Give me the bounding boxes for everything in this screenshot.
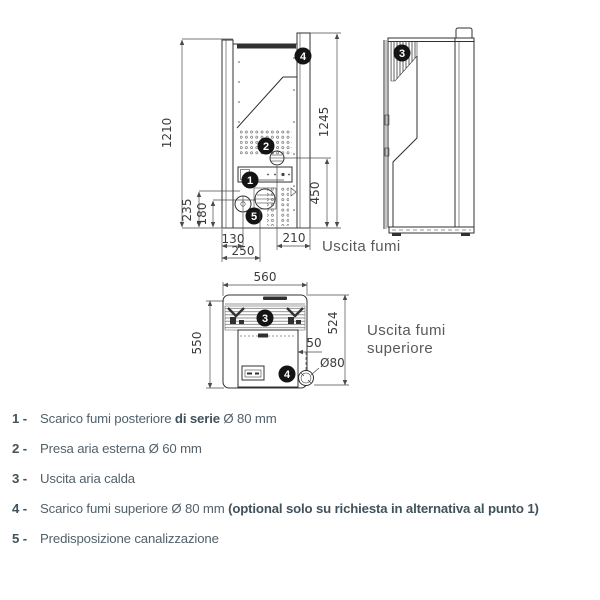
legend-item: 5 -Predisposizione canalizzazione <box>12 529 594 548</box>
rear-top-band <box>237 44 296 49</box>
legend: 1 -Scarico fumi posteriore di serie Ø 80… <box>12 409 594 559</box>
legend-item: 1 -Scarico fumi posteriore di serie Ø 80… <box>12 409 594 428</box>
legend-item-text: Scarico fumi superiore Ø 80 mm (optional… <box>40 499 539 518</box>
top-flue-stub <box>456 28 472 39</box>
dim-250: 250 <box>232 244 255 258</box>
badge-number: 1 <box>247 175 253 187</box>
badge-number: 2 <box>263 141 269 153</box>
legend-item-text: Scarico fumi posteriore di serie Ø 80 mm <box>40 409 277 428</box>
legend-item-number: 5 - <box>12 529 32 548</box>
dim-524: 524 <box>326 312 340 335</box>
badge-number: 4 <box>284 369 291 381</box>
dim-1245: 1245 <box>317 107 331 138</box>
dim-diameter-80: Ø80 <box>320 356 345 370</box>
badge-air-intake: 2 <box>258 138 275 155</box>
dim-180: 180 <box>195 203 209 226</box>
legend-item-number: 2 - <box>12 439 32 458</box>
legend-item-text: Presa aria esterna Ø 60 mm <box>40 439 202 458</box>
top-flue-label-line2: superiore <box>367 340 433 357</box>
legend-item-text: Predisposizione canalizzazione <box>40 529 219 548</box>
legend-item: 2 -Presa aria esterna Ø 60 mm <box>12 439 594 458</box>
stove-dimension-sheet: 4 2 1 5 1210 1245 450 235 180 <box>0 0 600 600</box>
top-latch-mark <box>258 334 268 338</box>
dim-550: 550 <box>190 332 204 355</box>
legend-item-number: 1 - <box>12 409 32 428</box>
dim-560: 560 <box>254 270 277 284</box>
legend-item-number: 4 - <box>12 499 32 518</box>
rear-flue-label: Uscita fumi <box>322 238 401 255</box>
dim-235: 235 <box>180 199 194 222</box>
badge-number: 4 <box>300 51 307 63</box>
badge-number: 5 <box>251 211 257 223</box>
technical-drawing: 4 2 1 5 1210 1245 450 235 180 <box>0 0 600 405</box>
legend-item-number: 3 - <box>12 469 32 488</box>
badge-side-hot-air: 3 <box>394 45 411 62</box>
legend-item: 3 -Uscita aria calda <box>12 469 594 488</box>
legend-item-text: Uscita aria calda <box>40 469 135 488</box>
rear-view: 4 2 1 5 <box>222 33 312 228</box>
dim-1210: 1210 <box>160 118 174 149</box>
legend-item: 4 -Scarico fumi superiore Ø 80 mm (optio… <box>12 499 594 518</box>
badge-number: 3 <box>262 313 268 325</box>
vent-holes-right <box>280 186 289 226</box>
dim-450: 450 <box>308 182 322 205</box>
badge-number: 3 <box>399 48 405 60</box>
badge-top-hot-air: 3 <box>257 310 274 327</box>
side-view: 3 <box>384 28 474 236</box>
vent-holes-left <box>267 186 276 226</box>
badge-rear-top-flue: 4 <box>295 48 312 65</box>
top-flue-label-line1: Uscita fumi <box>367 322 446 339</box>
dim-50: 50 <box>306 336 321 350</box>
top-view: 3 4 <box>223 295 314 388</box>
top-lid-handle <box>263 297 287 301</box>
dim-210: 210 <box>283 231 306 245</box>
badge-top-flue: 4 <box>279 366 296 383</box>
